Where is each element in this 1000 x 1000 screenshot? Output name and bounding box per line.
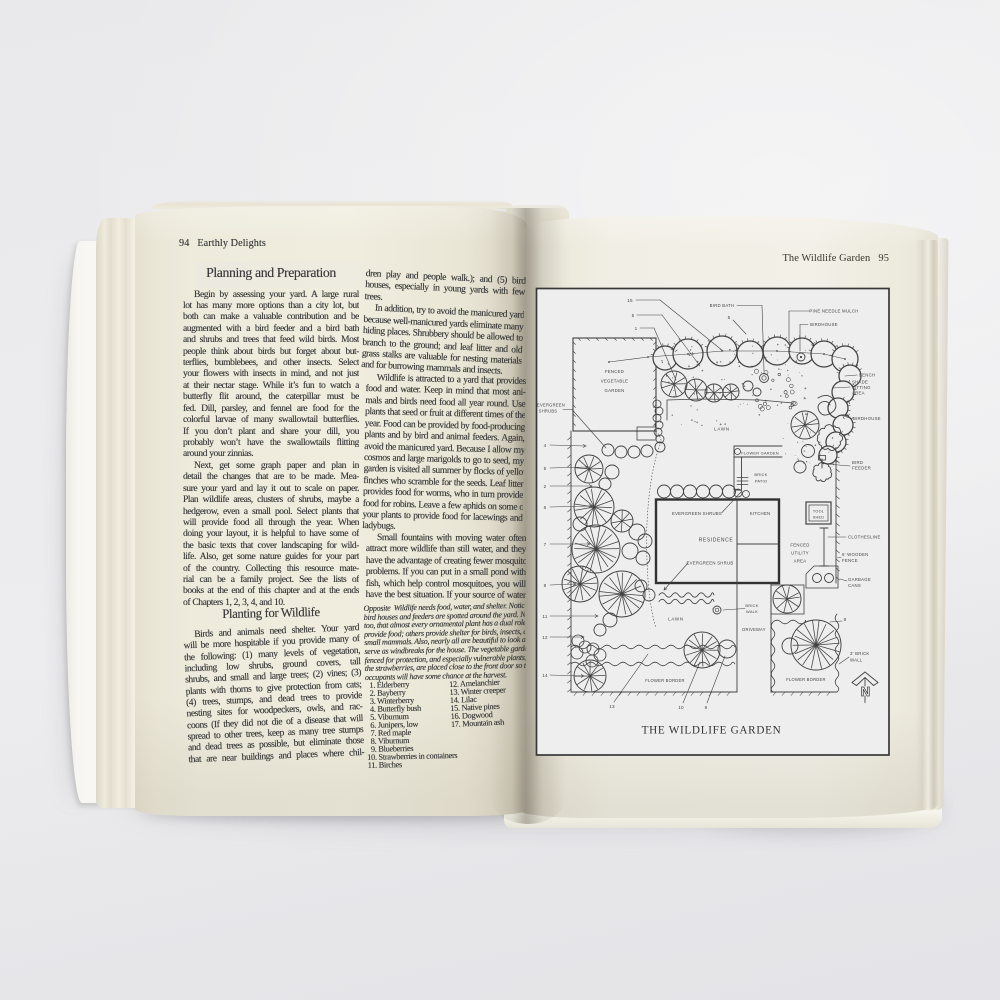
svg-text:CLOTHESLINE: CLOTHESLINE (848, 535, 881, 540)
svg-text:FENCED: FENCED (790, 543, 809, 548)
svg-text:7: 7 (544, 542, 547, 547)
svg-text:10: 10 (678, 705, 684, 710)
svg-text:EVERGREEN SHRUBS: EVERGREEN SHRUBS (672, 511, 722, 516)
svg-text:CANS: CANS (848, 583, 861, 588)
svg-text:UTILITY: UTILITY (791, 551, 809, 556)
svg-text:KITCHEN: KITCHEN (750, 511, 771, 516)
svg-text:4: 4 (544, 443, 547, 448)
svg-text:SHADE: SHADE (852, 380, 868, 385)
svg-text:8: 8 (844, 617, 847, 622)
svg-text:13: 13 (609, 704, 615, 709)
svg-text:BIRDHOUSE: BIRDHOUSE (810, 322, 838, 327)
svg-text:SHED: SHED (813, 516, 825, 520)
svg-text:WALK: WALK (746, 609, 758, 614)
svg-text:THE WILDLIFE GARDEN: THE WILDLIFE GARDEN (642, 725, 782, 737)
svg-text:EVERGREEN SHRUB: EVERGREEN SHRUB (687, 561, 734, 566)
svg-text:WALL: WALL (850, 658, 863, 663)
svg-text:PINE NEEDLE MULCH: PINE NEEDLE MULCH (809, 309, 858, 314)
svg-text:FENCE: FENCE (842, 558, 858, 563)
svg-text:1: 1 (635, 326, 638, 331)
svg-text:BRICK: BRICK (754, 472, 767, 477)
svg-text:GARBAGE: GARBAGE (848, 577, 871, 582)
svg-text:FLOWER GARDEN: FLOWER GARDEN (741, 451, 779, 456)
svg-text:TOOL: TOOL (813, 510, 824, 514)
svg-text:SITTING: SITTING (852, 385, 871, 390)
svg-text:5: 5 (728, 315, 731, 320)
svg-text:5: 5 (544, 466, 547, 471)
svg-text:BIRDHOUSE: BIRDHOUSE (853, 416, 881, 421)
svg-text:LAWN: LAWN (668, 617, 684, 622)
svg-text:AREA: AREA (794, 559, 807, 564)
svg-text:LAWN: LAWN (714, 427, 730, 432)
svg-text:GARDEN: GARDEN (605, 388, 625, 393)
svg-text:FENCED: FENCED (605, 369, 624, 374)
svg-text:6' WOODEN: 6' WOODEN (842, 552, 868, 557)
svg-text:FLOWER BORDER: FLOWER BORDER (645, 678, 684, 683)
svg-text:BIRD: BIRD (852, 460, 863, 465)
svg-text:8: 8 (544, 583, 547, 588)
svg-text:FLOWER BORDER: FLOWER BORDER (786, 677, 825, 682)
svg-text:BRICK: BRICK (745, 603, 758, 608)
svg-text:11: 11 (542, 614, 547, 619)
svg-text:N: N (861, 684, 870, 699)
svg-text:EVERGREEN: EVERGREEN (537, 403, 565, 408)
svg-text:RESIDENCE: RESIDENCE (699, 538, 734, 544)
svg-text:SHRUBS: SHRUBS (539, 409, 558, 414)
svg-text:2: 2 (544, 484, 547, 489)
svg-text:VEGETABLE: VEGETABLE (601, 379, 628, 384)
svg-text:PATIO: PATIO (755, 479, 767, 484)
svg-text:6: 6 (544, 505, 547, 510)
svg-text:5: 5 (632, 313, 635, 318)
svg-text:14: 14 (542, 673, 548, 678)
svg-text:15: 15 (627, 298, 633, 303)
svg-text:FEEDER: FEEDER (852, 466, 871, 471)
svg-text:9: 9 (705, 705, 708, 710)
svg-text:3' BRICK: 3' BRICK (850, 651, 870, 656)
svg-text:DRIVEWAY: DRIVEWAY (742, 627, 765, 632)
svg-text:BIRD BATH: BIRD BATH (710, 303, 735, 308)
svg-text:AREA: AREA (852, 391, 865, 396)
svg-text:12: 12 (542, 635, 548, 640)
svg-text:BENCH: BENCH (859, 373, 875, 378)
